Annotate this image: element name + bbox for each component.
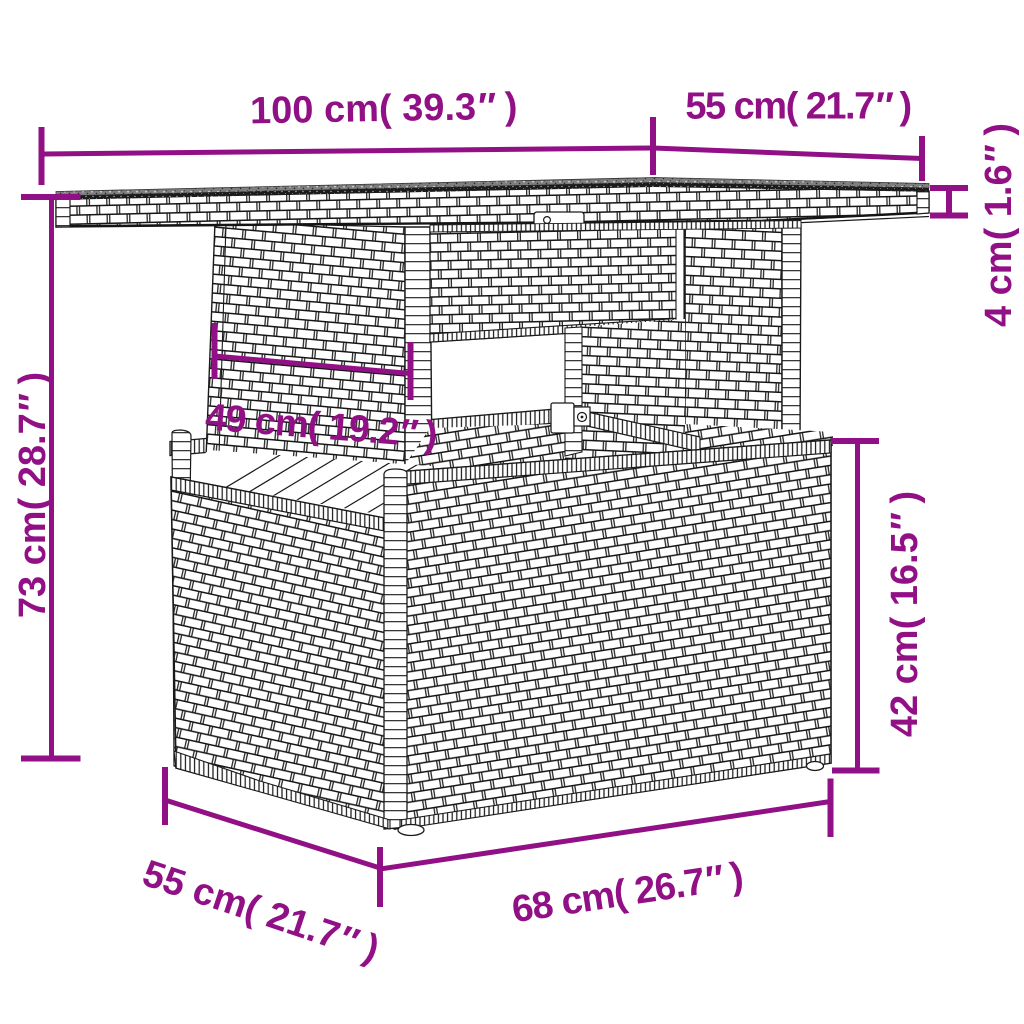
svg-text:55 cm( 21.7″ ): 55 cm( 21.7″ ) [685, 86, 910, 128]
svg-text:42 cm( 16.5″ ): 42 cm( 16.5″ ) [884, 491, 926, 737]
svg-text:73 cm( 28.7″ ): 73 cm( 28.7″ ) [12, 372, 54, 618]
svg-text:4 cm( 1.6″ ): 4 cm( 1.6″ ) [978, 123, 1020, 327]
svg-text:100 cm( 39.3″ ): 100 cm( 39.3″ ) [250, 86, 518, 133]
